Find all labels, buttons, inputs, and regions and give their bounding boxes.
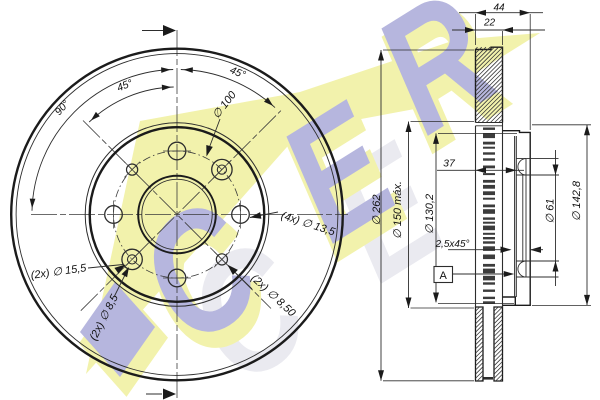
svg-text:∅ 61: ∅ 61 bbox=[545, 199, 557, 224]
svg-text:∅ 150 máx.: ∅ 150 máx. bbox=[392, 181, 404, 239]
svg-text:22: 22 bbox=[483, 18, 496, 29]
svg-text:2,5x45°: 2,5x45° bbox=[434, 239, 469, 250]
svg-text:44: 44 bbox=[493, 3, 505, 14]
svg-text:37: 37 bbox=[443, 158, 456, 170]
svg-text:∅ 142,8: ∅ 142,8 bbox=[571, 180, 583, 221]
svg-text:∅ 130,2: ∅ 130,2 bbox=[424, 194, 436, 234]
svg-text:A: A bbox=[440, 270, 448, 282]
